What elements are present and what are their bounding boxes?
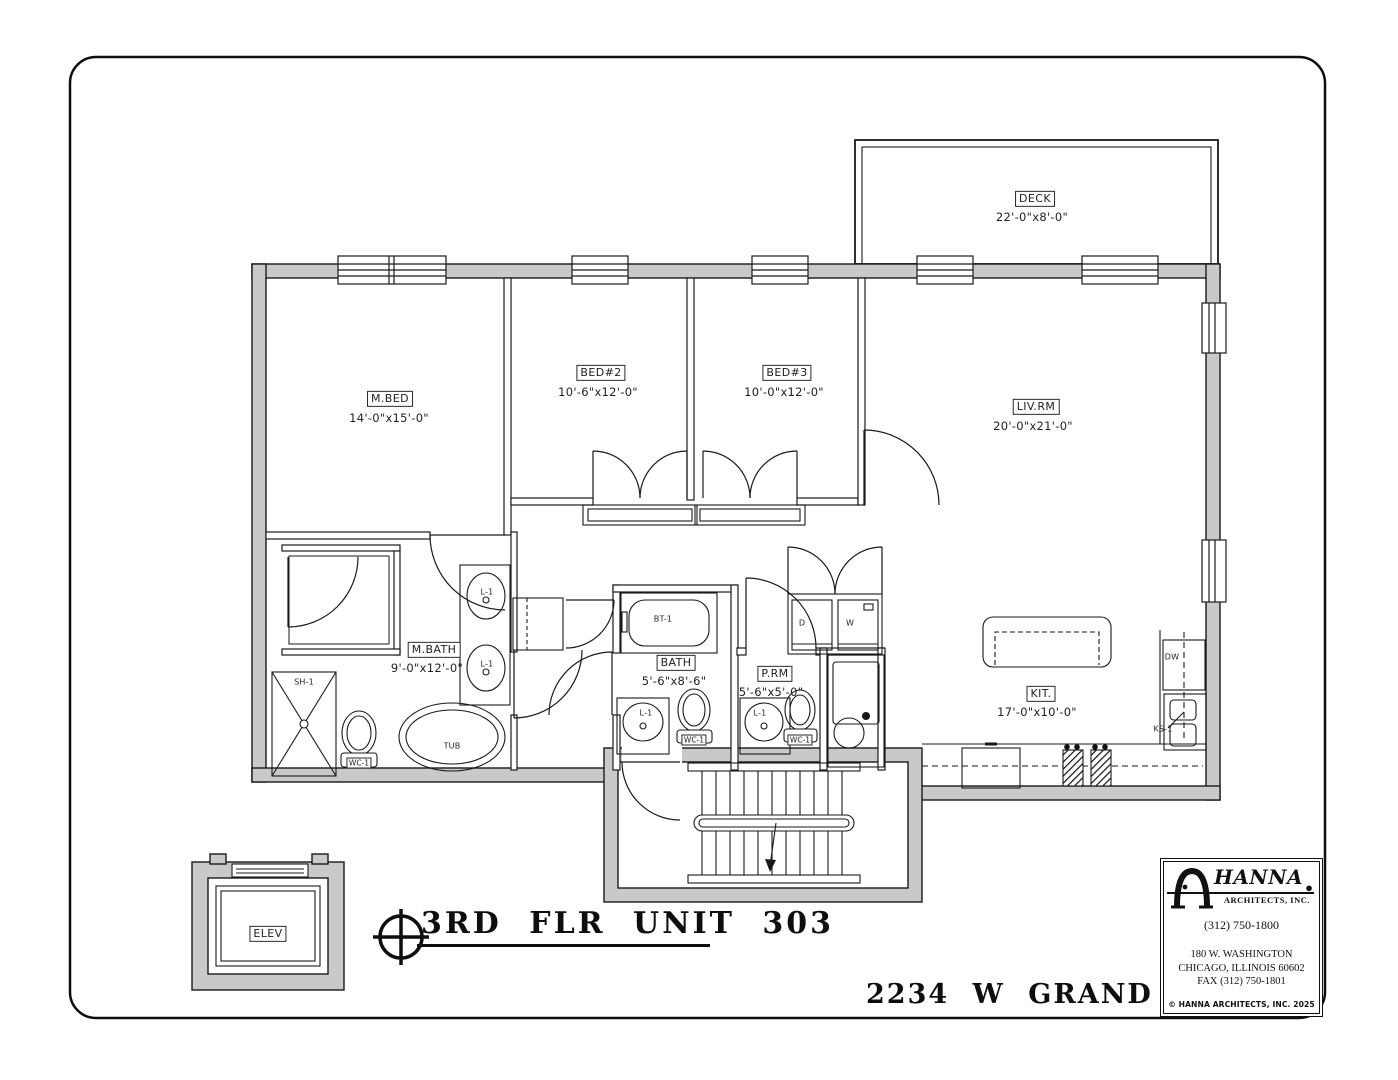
room-dims-deck: 22'-0"x8'-0" (996, 210, 1068, 224)
firm-fax: FAX (312) 750-1801 (1164, 975, 1319, 989)
room-dims-prm: 5'-6"x5'-0" (739, 685, 804, 699)
firm-address-line1: 180 W. WASHINGTON (1164, 948, 1319, 962)
title-block-inner: HANNA ● ARCHITECTS, INC. (312) 750-1800 … (1163, 861, 1320, 1014)
plan-title-underline (417, 944, 710, 947)
room-dims-bed3: 10'-0"x12'-0" (744, 385, 824, 399)
fixture-label-lav-bath: L-1 (640, 709, 653, 718)
room-label-prm: P.RM (757, 666, 792, 682)
room-label-mbath: M.BATH (408, 642, 461, 658)
room-label-kit: KIT. (1027, 686, 1056, 702)
room-label-mbed: M.BED (367, 391, 413, 407)
arch-logo-icon (1169, 865, 1215, 911)
fixture-label-dishwasher: DW (1165, 653, 1179, 662)
firm-address: 180 W. WASHINGTON CHICAGO, ILLINOIS 6060… (1164, 948, 1319, 989)
door-casings (583, 505, 805, 525)
firm-subtitle: ARCHITECTS, INC. (1224, 895, 1310, 905)
room-dims-mbed: 14'-0"x15'-0" (349, 411, 429, 425)
fixture-label-lav-mbath-1: L-1 (481, 588, 494, 597)
room-label-bed2: BED#2 (576, 365, 625, 381)
fixture-label-lav-prm: L-1 (754, 709, 767, 718)
firm-copyright: © HANNA ARCHITECTS, INC. 2025 (1164, 1000, 1319, 1009)
firm-phone: (312) 750-1800 (1164, 918, 1319, 933)
fixture-label-wc-bath: WC-1 (681, 735, 706, 746)
firm-address-line2: CHICAGO, ILLINOIS 60602 (1164, 962, 1319, 976)
room-label-bath: BATH (657, 655, 696, 671)
fixture-label-tub: TUB (444, 742, 461, 751)
room-dims-livrm: 20'-0"x21'-0" (993, 419, 1073, 433)
fixture-label-wc-prm: WC-1 (787, 735, 812, 746)
fixture-label-lav-mbath-2: L-1 (481, 660, 494, 669)
firm-name: HANNA (1214, 865, 1303, 889)
fixture-label-washer: W (846, 619, 854, 628)
stair-door-opening (622, 746, 682, 764)
kitchen-fixtures (922, 617, 1206, 788)
room-label-livrm: LIV.RM (1013, 399, 1060, 415)
closet-shelving (289, 556, 389, 644)
title-block: HANNA ● ARCHITECTS, INC. (312) 750-1800 … (1160, 858, 1323, 1017)
fixture-label-dryer: D (799, 619, 805, 628)
fixture-label-wc-mbath: WC-1 (346, 758, 371, 769)
plan-title: 3RD FLR UNIT 303 (421, 906, 834, 941)
room-label-bed3: BED#3 (762, 365, 811, 381)
room-label-elev: ELEV (249, 926, 286, 942)
firm-logo: HANNA ● ARCHITECTS, INC. (1164, 862, 1319, 910)
fixture-label-shower: SH-1 (294, 678, 314, 687)
room-dims-mbath: 9'-0"x12'-0" (391, 661, 463, 675)
room-dims-bath: 5'-6"x8'-6" (642, 674, 707, 688)
fixture-label-kitchen-sink: KS-1 (1153, 725, 1172, 734)
firm-dot: ● (1305, 880, 1313, 896)
room-label-deck: DECK (1015, 191, 1055, 207)
room-dims-kit: 17'-0"x10'-0" (997, 705, 1077, 719)
room-dims-bed2: 10'-6"x12'-0" (558, 385, 638, 399)
fixture-label-bathtub: BT-1 (654, 615, 672, 624)
